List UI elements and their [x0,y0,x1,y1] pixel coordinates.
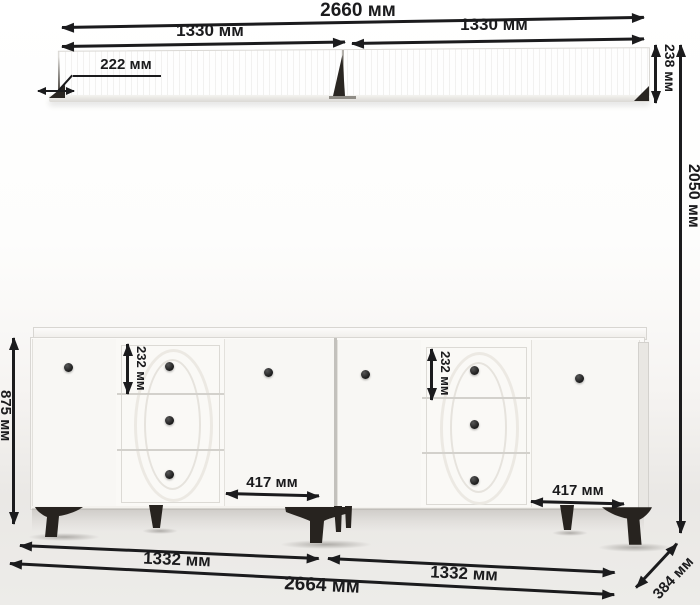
drawer-height-left-arrow [126,344,129,394]
drawer-divider [117,449,224,451]
shelf-right-width-arrow [352,37,644,45]
leg-right-front [601,506,653,546]
shelf-right-width-label: 1330 мм [432,16,556,35]
door-knob [575,374,584,383]
cabinet-height-label: 875 мм [0,390,13,470]
shelf-height-arrow [654,45,657,103]
leg-left-back [147,505,164,529]
shelf-left-width-label: 1330 мм [148,22,272,41]
drawer-knob [470,420,479,429]
drawer-knob [470,366,479,375]
right-door-1 [337,340,423,507]
shelf-depth-arrow [38,90,74,92]
furniture-dimensions-diagram: 2660 мм 1330 мм 1330 мм 222 мм 238 мм 20… [0,0,700,605]
shelf-depth-leader [73,75,161,77]
drawer-knob [165,416,174,425]
shelf-total-width-label: 2660 мм [293,1,423,22]
leg-center-back [333,506,353,534]
leg-left-front [34,506,84,538]
cabinet-right-side-panel [638,342,649,510]
drawer-height-left-label: 232 мм [135,346,148,398]
leg-right-back [558,505,575,531]
wall-shelf-center-base [329,96,356,99]
drawer-height-right-arrow [430,349,433,400]
overall-height-label: 2050 мм [685,164,700,254]
shelf-left-width-arrow [62,41,345,48]
door-knob [264,368,273,377]
drawer-oval-inner-right [450,362,507,493]
drawer-knob [165,470,174,479]
drawer-height-right-label: 232 мм [439,351,452,403]
drawer-knob [470,476,479,485]
drawer-divider [422,452,530,454]
overall-height-arrow [679,45,682,533]
left-door-1 [32,339,118,506]
door-knob [64,363,73,372]
drawer-knob [165,362,174,371]
door-knob [361,370,370,379]
drawer-divider [117,393,224,395]
shelf-depth-label: 222 мм [90,57,162,74]
cabinet-total-width-label: 2664 мм [262,573,383,600]
